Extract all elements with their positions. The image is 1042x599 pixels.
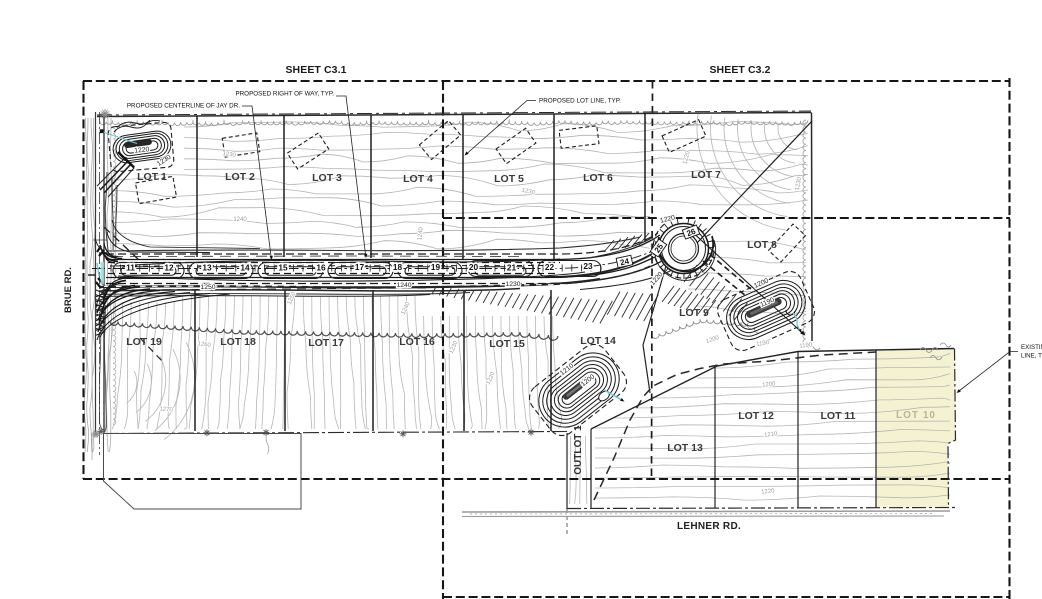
svg-text:PROPOSED CENTERLINE OF JAY DR.: PROPOSED CENTERLINE OF JAY DR. bbox=[127, 103, 240, 110]
svg-text:17: 17 bbox=[355, 262, 365, 272]
svg-text:LOT 13: LOT 13 bbox=[667, 442, 703, 454]
svg-text:PROPOSED LOT LINE, TYP.: PROPOSED LOT LINE, TYP. bbox=[539, 98, 621, 105]
svg-text:12: 12 bbox=[164, 263, 174, 273]
svg-text:LOT 19: LOT 19 bbox=[126, 336, 162, 348]
svg-text:LOT 17: LOT 17 bbox=[308, 337, 344, 349]
svg-text:16: 16 bbox=[316, 262, 326, 272]
svg-text:SHEET C3.2: SHEET C3.2 bbox=[709, 64, 770, 76]
svg-text:EXISTING: EXISTING bbox=[1021, 344, 1042, 351]
svg-text:BRUE RD.: BRUE RD. bbox=[63, 267, 74, 313]
svg-text:14: 14 bbox=[240, 263, 250, 273]
svg-text:11: 11 bbox=[126, 263, 135, 273]
svg-text:LOT 2: LOT 2 bbox=[225, 171, 255, 183]
svg-text:1270: 1270 bbox=[159, 407, 173, 414]
svg-text:LEHNER RD.: LEHNER RD. bbox=[677, 521, 741, 532]
svg-text:1240: 1240 bbox=[396, 282, 411, 289]
svg-text:LOT 3: LOT 3 bbox=[312, 172, 342, 184]
svg-text:LINE, TY: LINE, TY bbox=[1021, 353, 1042, 360]
svg-text:LOT 6: LOT 6 bbox=[583, 172, 613, 184]
svg-text:20: 20 bbox=[469, 262, 479, 272]
svg-text:19: 19 bbox=[431, 262, 441, 272]
svg-text:LOT 16: LOT 16 bbox=[399, 336, 435, 348]
svg-text:LOT 15: LOT 15 bbox=[489, 338, 525, 350]
svg-text:23: 23 bbox=[583, 261, 593, 271]
svg-text:SHEET C3.1: SHEET C3.1 bbox=[285, 64, 346, 76]
svg-text:LOT 18: LOT 18 bbox=[220, 336, 256, 348]
svg-text:1250: 1250 bbox=[200, 284, 215, 291]
svg-text:LOT 1: LOT 1 bbox=[137, 171, 167, 183]
svg-text:22: 22 bbox=[545, 262, 555, 272]
svg-text:13: 13 bbox=[202, 263, 212, 273]
svg-text:21: 21 bbox=[507, 262, 517, 272]
svg-text:1240: 1240 bbox=[233, 217, 247, 223]
svg-text:LOT 7: LOT 7 bbox=[691, 169, 721, 181]
svg-text:LOT 11: LOT 11 bbox=[820, 410, 855, 422]
svg-text:LOT 4: LOT 4 bbox=[403, 173, 433, 185]
svg-text:LOT 12: LOT 12 bbox=[738, 410, 774, 422]
svg-text:1230: 1230 bbox=[505, 281, 520, 288]
svg-text:LOT 5: LOT 5 bbox=[494, 173, 524, 185]
svg-text:PROPOSED RIGHT OF WAY, TYP.: PROPOSED RIGHT OF WAY, TYP. bbox=[235, 91, 334, 98]
svg-text:OUTLOT 1: OUTLOT 1 bbox=[573, 425, 584, 475]
svg-text:LOT 10: LOT 10 bbox=[896, 410, 936, 421]
svg-text:18: 18 bbox=[393, 262, 403, 272]
svg-text:LOT 14: LOT 14 bbox=[580, 335, 616, 347]
svg-text:15: 15 bbox=[278, 263, 288, 273]
svg-text:LOT 8: LOT 8 bbox=[747, 239, 777, 251]
svg-text:LOT 9: LOT 9 bbox=[679, 307, 709, 319]
